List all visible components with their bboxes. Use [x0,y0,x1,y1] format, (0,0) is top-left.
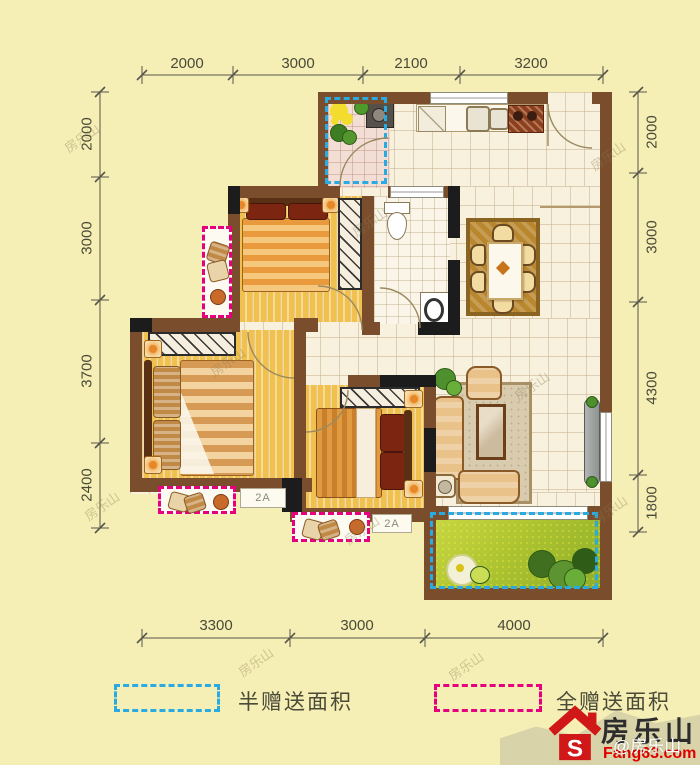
dim-label-top: 3000 [281,55,314,72]
floor-plan-canvas: 2A 2A [0,0,700,765]
dim-label-left: 3000 [79,221,96,254]
dim-label-top: 2000 [170,55,203,72]
dim-label-left: 3700 [79,354,96,387]
house-icon: S [547,704,603,764]
dim-label-top: 2100 [394,55,427,72]
svg-text:S: S [567,735,583,762]
dim-label-left: 2000 [79,117,96,150]
legend-half-swatch [114,684,220,712]
logo-watermark-text: @房乐山 [613,732,681,757]
dim-label-bottom: 3000 [340,617,373,634]
logo: S 房乐山 Fang63.com @房乐山 [545,702,700,765]
dim-label-right: 4300 [644,371,661,404]
legend-full-swatch [434,684,542,712]
legend-half-label: 半赠送面积 [238,686,353,716]
dim-label-top: 3200 [514,55,547,72]
dim-label-right: 2000 [644,115,661,148]
dim-label-bottom: 4000 [497,617,530,634]
dim-label-right: 3000 [644,220,661,253]
dim-label-left: 2400 [79,468,96,501]
dim-label-right: 1800 [644,486,661,519]
dimension-svg [0,0,700,765]
dim-label-bottom: 3300 [199,617,232,634]
